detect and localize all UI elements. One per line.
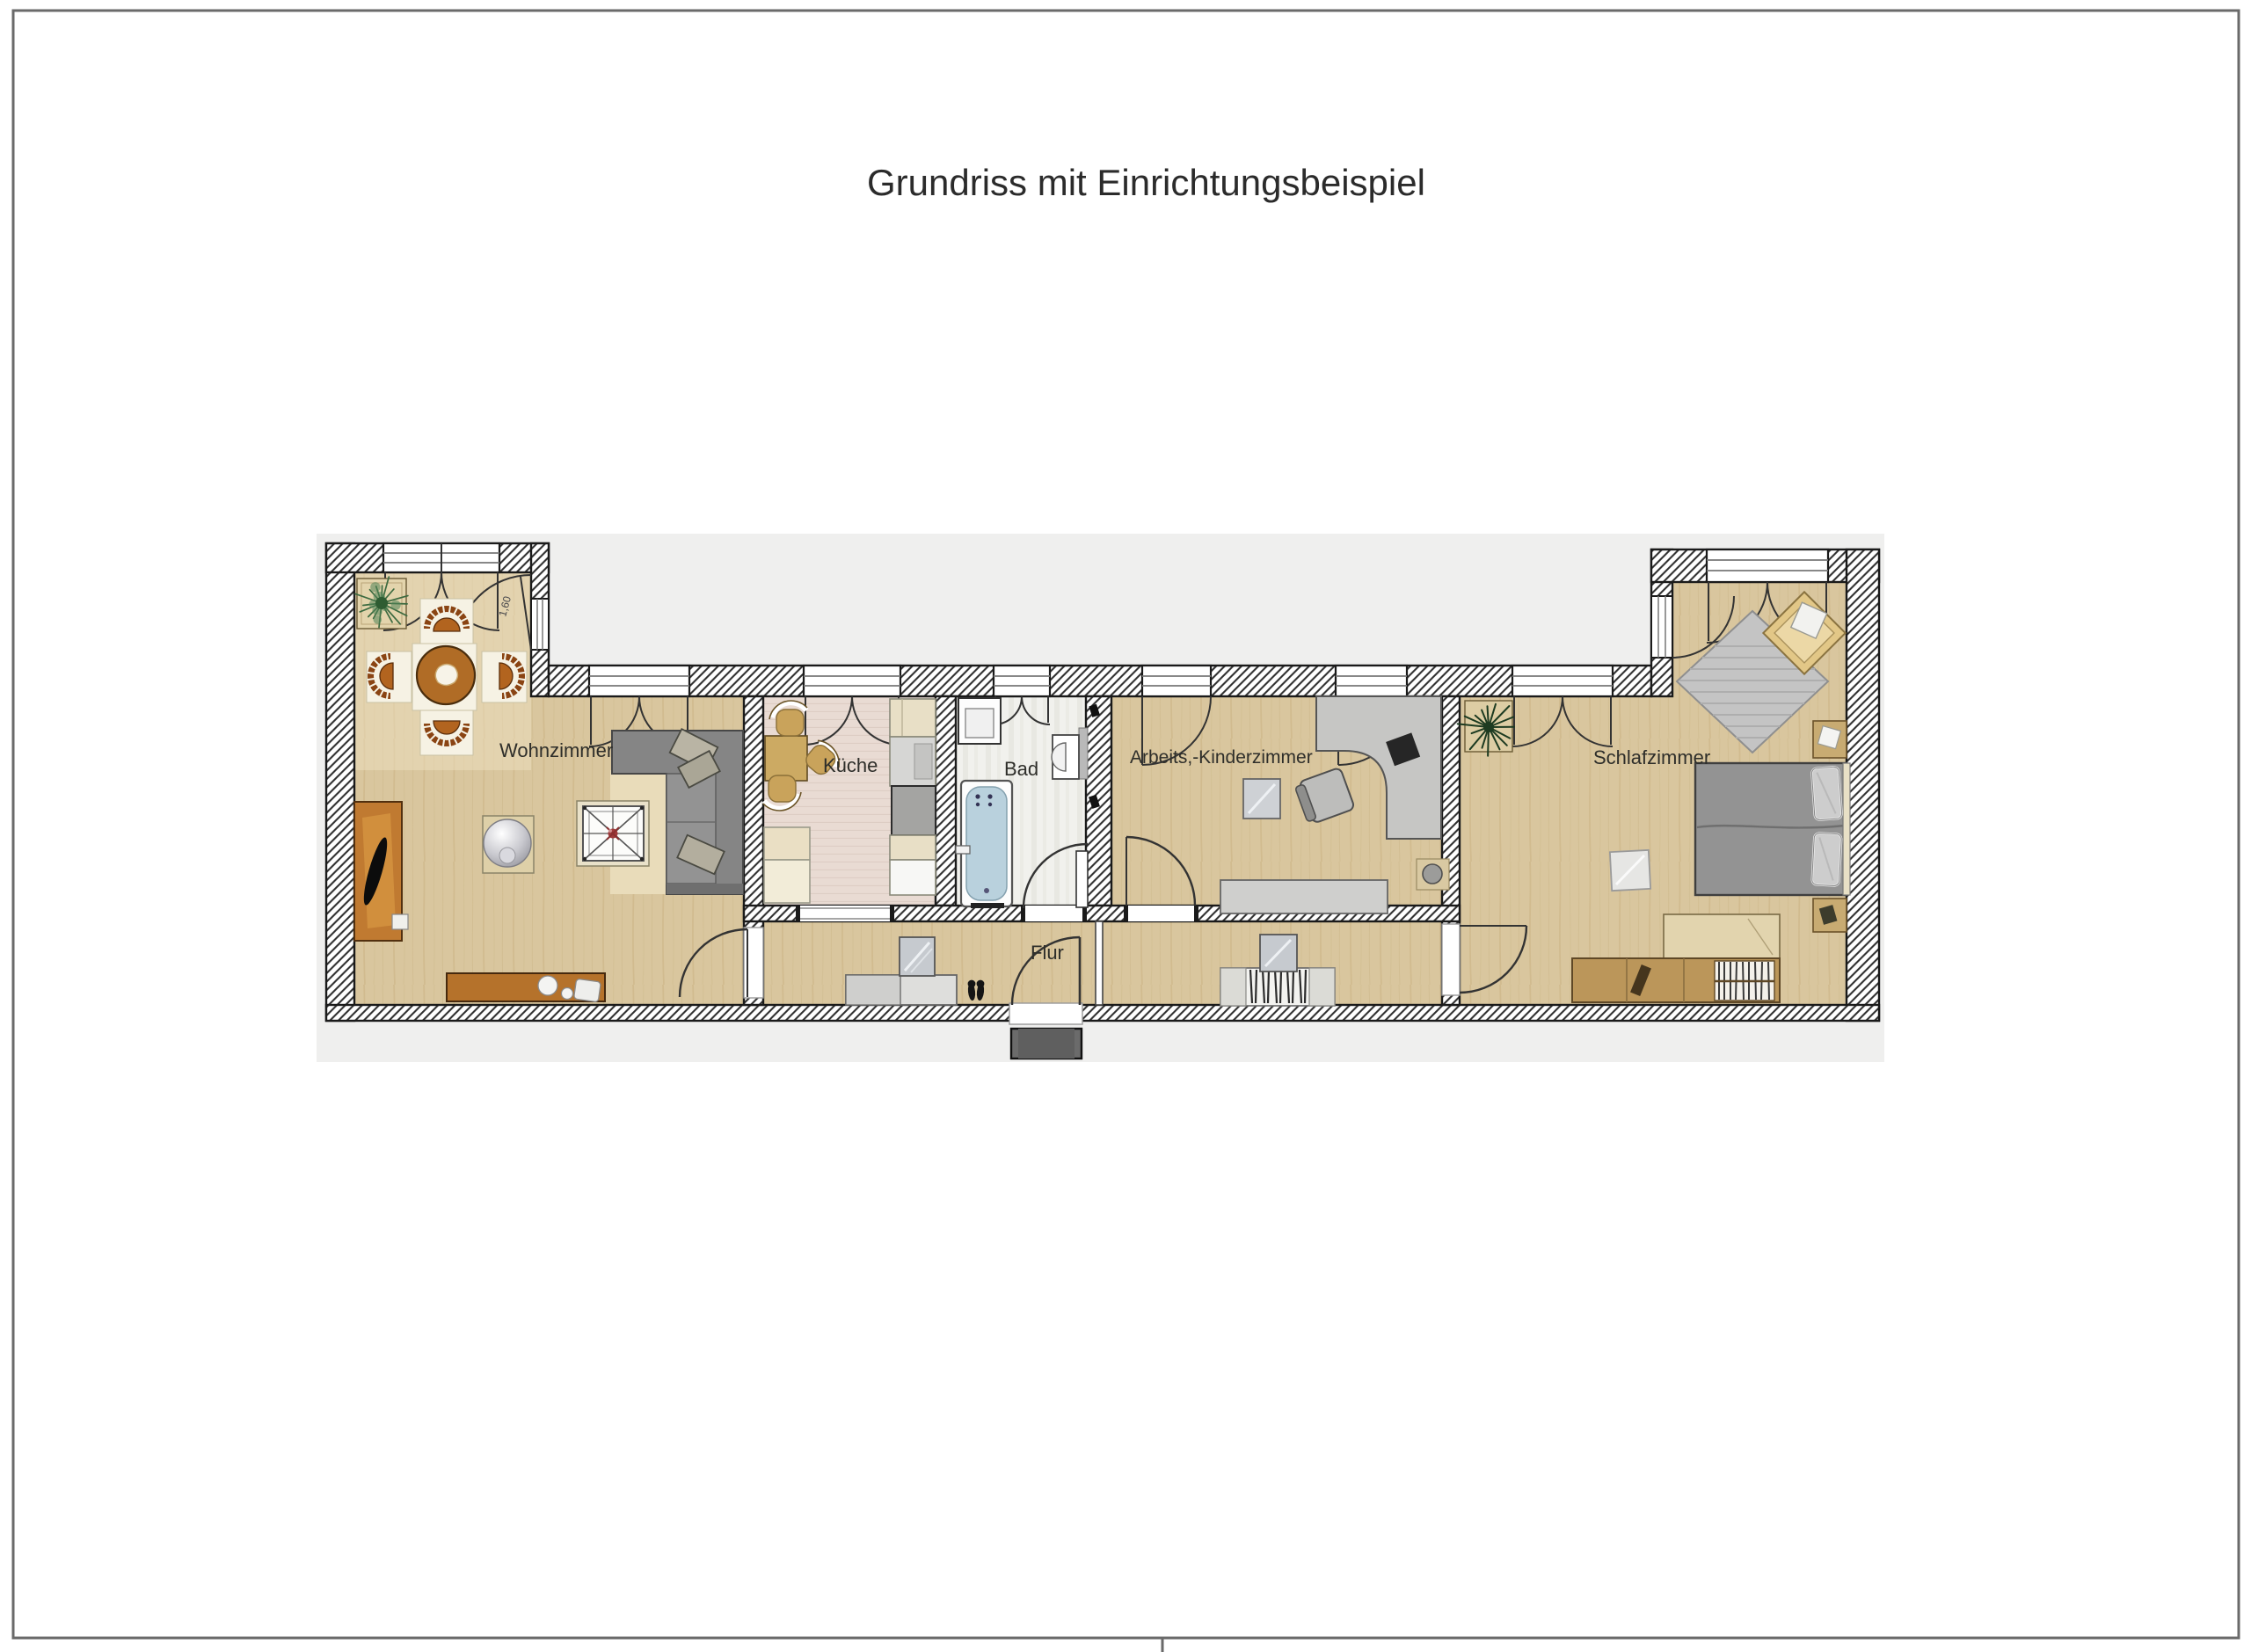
svg-text:Arbeits,-Kinderzimmer: Arbeits,-Kinderzimmer (1130, 747, 1313, 768)
svg-text:Küche: Küche (823, 754, 878, 776)
svg-text:Flur: Flur (1031, 942, 1064, 964)
svg-text:Bad: Bad (1004, 758, 1038, 780)
svg-text:Grundriss mit Einrichtungsbeis: Grundriss mit Einrichtungsbeispiel (867, 162, 1425, 203)
svg-text:Wohnzimmer: Wohnzimmer (499, 739, 613, 761)
svg-text:Schlafzimmer: Schlafzimmer (1593, 746, 1710, 768)
